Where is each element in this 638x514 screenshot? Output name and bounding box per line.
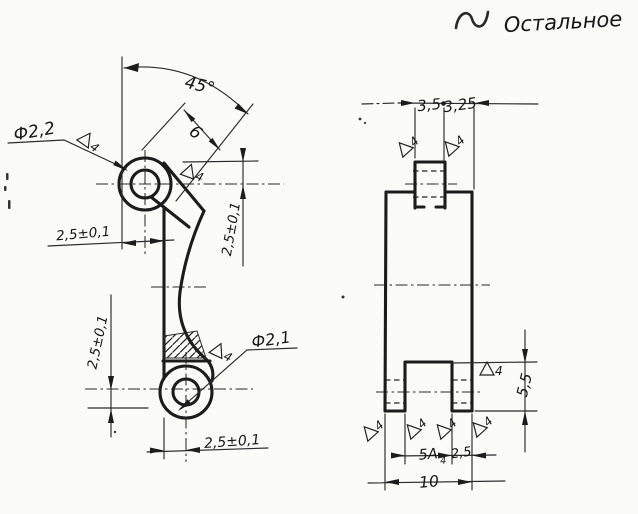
- top-hole-dimension: Ф2,2: [8, 119, 128, 171]
- dim-left-offset: 2,5±0,1: [85, 314, 112, 370]
- roughness-mark-icon: 4: [359, 416, 387, 443]
- roughness-mark-icon: 4: [208, 341, 235, 365]
- front-view: 45° 6 Ф2,2 Ф2,1 2,5±0,1: [8, 57, 297, 462]
- left-offset-dimension: 2,5±0,1: [85, 295, 148, 437]
- dim-slot-depth: 5,5: [513, 371, 536, 398]
- roughness-mark-icon: 4: [75, 129, 103, 155]
- tilde-icon: [456, 12, 488, 28]
- lever-technical-drawing: Остальное: [0, 0, 638, 514]
- roughness-grade: 4: [415, 416, 430, 432]
- dim-tab-width: 3,5: [416, 95, 442, 115]
- drawing-sheet: Остальное: [0, 0, 638, 514]
- roughness-mark-icon: 4: [402, 414, 430, 441]
- roughness-mark-icon: 4: [394, 132, 422, 159]
- slot-width-dimension: 5А 4 2,5: [391, 414, 496, 467]
- roughness-mark-icon: 4: [432, 414, 460, 441]
- roughness-grade: 4: [407, 134, 422, 150]
- dim-slot-width: 5А: [418, 446, 438, 464]
- lug-offset-dimension: 6: [184, 110, 220, 150]
- right-offset-dimension: 2,5±0,1: [183, 148, 258, 266]
- dim-angle: 45°: [183, 73, 217, 100]
- roughness-mark-icon: 4: [480, 362, 503, 378]
- section-hatch: [164, 331, 206, 358]
- dim-lug-offset: 6: [185, 122, 206, 145]
- slot-depth-dimension: 5,5: [450, 330, 537, 452]
- roughness-grade: 4: [193, 169, 205, 185]
- roughness-grade: 4: [453, 133, 468, 149]
- surface-finish-note: Остальное: [456, 7, 623, 37]
- hidden-holes: [385, 171, 472, 403]
- roughness-grade: 4: [495, 364, 503, 378]
- scan-artifacts: [4, 118, 366, 434]
- dim-slot-fit: 4: [440, 455, 447, 466]
- front-centerlines: [85, 150, 284, 462]
- front-outline: [119, 158, 213, 418]
- roughness-grade: 4: [481, 414, 496, 430]
- side-view: 3,5 3,25 5,5 5А 4 2,5: [359, 94, 538, 492]
- dim-shoulder-width: 3,25: [442, 94, 478, 116]
- dim-leg-width: 2,5: [450, 445, 473, 463]
- dim-top-offset: 2,5±0,1: [55, 224, 110, 245]
- note-text: Остальное: [503, 7, 623, 37]
- roughness-mark-icon: 4: [179, 162, 206, 185]
- roughness-grade: 4: [372, 418, 387, 434]
- tab-dimensions: 3,5 3,25: [362, 94, 538, 189]
- bottom-offset-dimension: 2,5±0,1: [147, 418, 268, 459]
- dim-right-offset: 2,5±0,1: [219, 201, 244, 257]
- top-offset-dimension: 2,5±0,1: [48, 224, 174, 246]
- side-outline: [385, 162, 472, 411]
- dim-overall-width: 10: [418, 472, 439, 492]
- roughness-grade: 4: [445, 416, 460, 432]
